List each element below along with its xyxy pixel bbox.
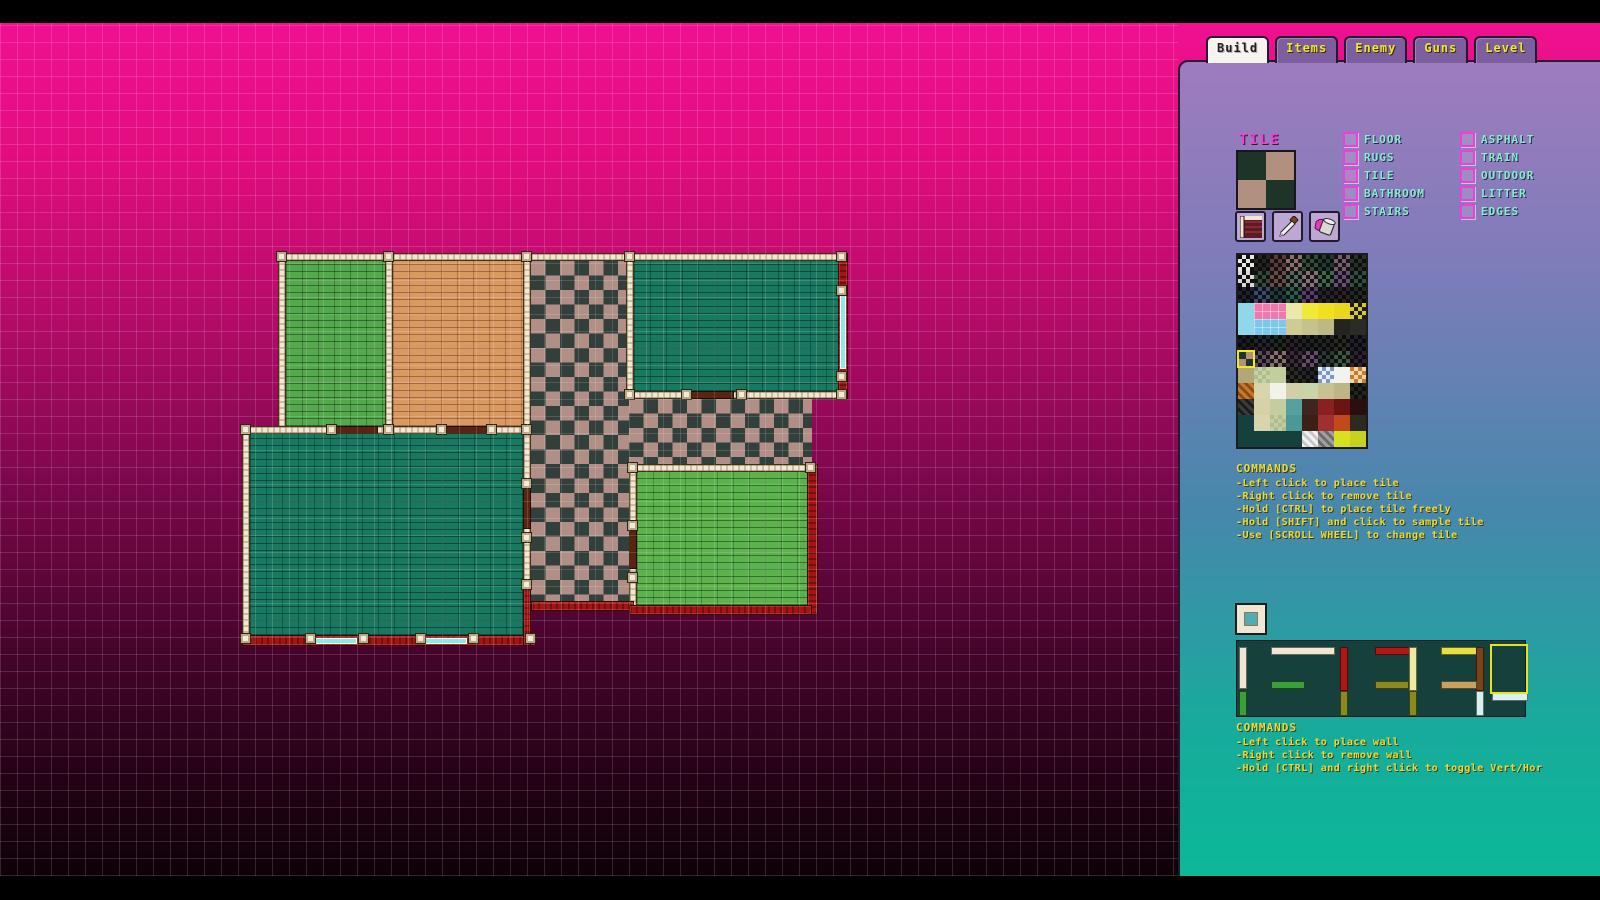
- command-line: -Left click to place wall: [1236, 736, 1542, 749]
- palette-tile[interactable]: [1350, 303, 1366, 319]
- window[interactable]: [840, 291, 846, 369]
- wall-palette-segment[interactable]: [1271, 681, 1305, 689]
- checkbox-stairs[interactable]: [1343, 204, 1358, 219]
- wall-post: [486, 424, 497, 435]
- category-train[interactable]: TRAIN: [1460, 151, 1534, 164]
- tile-categories-column-1: FLOORRUGS✕TILEBATHROOMSTAIRS: [1343, 133, 1425, 218]
- paint-bucket-tool-button[interactable]: [1309, 211, 1340, 242]
- palette-tile[interactable]: [1350, 271, 1366, 287]
- command-line: -Left click to place tile: [1236, 477, 1484, 490]
- palette-tile[interactable]: [1334, 255, 1350, 271]
- wall-palette-segment[interactable]: [1375, 681, 1409, 689]
- eyedropper-tool-button[interactable]: [1272, 211, 1303, 242]
- editor-panel: BuildItemsEnemyGunsLevel TILE: [1178, 23, 1600, 876]
- wall-post: [624, 251, 635, 262]
- palette-tile[interactable]: [1350, 287, 1366, 303]
- checkbox-edges[interactable]: [1460, 204, 1475, 219]
- room-floor-greenBrick2[interactable]: [637, 472, 807, 605]
- door[interactable]: [629, 525, 637, 569]
- checkbox-label: EDGES: [1481, 205, 1519, 218]
- tile-section-title: TILE: [1239, 132, 1281, 148]
- palette-tile[interactable]: [1318, 351, 1334, 367]
- wall-white[interactable]: [385, 253, 393, 434]
- palette-tile[interactable]: [1334, 415, 1350, 431]
- palette-tile[interactable]: [1286, 335, 1302, 351]
- window[interactable]: [422, 638, 467, 644]
- wall-white[interactable]: [523, 253, 531, 434]
- checkbox-label: FLOOR: [1364, 133, 1402, 146]
- room-floor-tealBrick[interactable]: [250, 434, 523, 635]
- wall-commands-title: COMMANDS: [1236, 721, 1542, 734]
- checkbox-label: RUGS: [1364, 151, 1395, 164]
- category-bathroom[interactable]: BATHROOM: [1343, 187, 1425, 200]
- palette-tile[interactable]: [1318, 431, 1334, 447]
- checkbox-tile[interactable]: ✕: [1343, 168, 1358, 183]
- checkbox-outdoor[interactable]: [1460, 168, 1475, 183]
- palette-tile[interactable]: [1238, 399, 1254, 415]
- window[interactable]: [312, 638, 357, 644]
- wall-palette-segment[interactable]: [1340, 647, 1348, 691]
- letterbox-bottom: [0, 876, 1600, 900]
- palette-tile[interactable]: [1334, 367, 1350, 383]
- room-floor-checker[interactable]: [629, 399, 812, 464]
- wall-palette-segment[interactable]: [1239, 691, 1247, 716]
- wall-palette-segment[interactable]: [1441, 681, 1477, 689]
- palette-tile[interactable]: [1302, 351, 1318, 367]
- wall-post: [468, 633, 479, 644]
- command-line: -Use [SCROLL WHEEL] to change tile: [1236, 529, 1484, 542]
- tab-guns[interactable]: Guns: [1413, 36, 1468, 63]
- checkbox-label: BATHROOM: [1364, 187, 1425, 200]
- wall-post: [627, 572, 638, 583]
- checkbox-label: TILE: [1364, 169, 1395, 182]
- wall-post: [836, 285, 847, 296]
- palette-tile[interactable]: [1254, 287, 1270, 303]
- checkbox-label: STAIRS: [1364, 205, 1410, 218]
- checkbox-floor[interactable]: [1343, 132, 1358, 147]
- palette-tile[interactable]: [1254, 255, 1270, 271]
- wall-post: [240, 633, 251, 644]
- tile-commands: COMMANDS -Left click to place tile-Right…: [1236, 462, 1484, 542]
- wall-palette-segment[interactable]: [1476, 691, 1484, 716]
- palette-tile[interactable]: [1270, 303, 1286, 319]
- palette-tile[interactable]: [1302, 367, 1318, 383]
- wall-post: [305, 633, 316, 644]
- palette-tile[interactable]: [1350, 383, 1366, 399]
- category-stairs[interactable]: STAIRS: [1343, 205, 1425, 218]
- palette-tile[interactable]: [1238, 303, 1254, 319]
- palette-tile[interactable]: [1254, 399, 1270, 415]
- palette-tile[interactable]: [1286, 287, 1302, 303]
- category-litter[interactable]: LITTER: [1460, 187, 1534, 200]
- wall-white[interactable]: [626, 253, 634, 399]
- command-line: -Hold [SHIFT] and click to sample tile: [1236, 516, 1484, 529]
- wall-post: [326, 424, 337, 435]
- wall-pattern-icon: [1240, 216, 1262, 238]
- wall-post: [358, 633, 369, 644]
- checkbox-label: TRAIN: [1481, 151, 1519, 164]
- wall-palette-segment[interactable]: [1476, 647, 1484, 691]
- palette-tile[interactable]: [1238, 255, 1254, 271]
- wall-commands: COMMANDS -Left click to place wall-Right…: [1236, 721, 1542, 775]
- palette-tile[interactable]: [1302, 319, 1318, 335]
- palette-tile[interactable]: [1286, 415, 1302, 431]
- palette-tile[interactable]: [1350, 415, 1366, 431]
- letterbox-top: [0, 0, 1600, 23]
- wall-post: [436, 424, 447, 435]
- command-line: -Right click to remove tile: [1236, 490, 1484, 503]
- wall-post: [525, 633, 536, 644]
- palette-tile[interactable]: [1302, 335, 1318, 351]
- checkbox-litter[interactable]: [1460, 186, 1475, 201]
- wall-post: [805, 462, 816, 473]
- palette-tile[interactable]: [1254, 367, 1270, 383]
- palette-tile[interactable]: [1318, 383, 1334, 399]
- door[interactable]: [688, 391, 734, 399]
- palette-tile[interactable]: [1350, 255, 1366, 271]
- checkbox-label: LITTER: [1481, 187, 1527, 200]
- category-tile[interactable]: ✕TILE: [1343, 169, 1425, 182]
- palette-tile[interactable]: [1238, 287, 1254, 303]
- selected-tile-preview: [1236, 150, 1296, 210]
- wall-palette-segment[interactable]: [1409, 647, 1417, 691]
- wall-palette-segment[interactable]: [1409, 691, 1417, 716]
- palette-tile[interactable]: [1302, 287, 1318, 303]
- palette-tile[interactable]: [1302, 399, 1318, 415]
- palette-tile[interactable]: [1238, 335, 1254, 351]
- category-rugs[interactable]: RUGS: [1343, 151, 1425, 164]
- wall-post: [836, 251, 847, 262]
- checkbox-label: OUTDOOR: [1481, 169, 1534, 182]
- command-line: -Hold [CTRL] to place tile freely: [1236, 503, 1484, 516]
- tab-enemy[interactable]: Enemy: [1344, 36, 1407, 63]
- checkbox-rugs[interactable]: [1343, 150, 1358, 165]
- wall-palette-segment[interactable]: [1239, 647, 1247, 689]
- door[interactable]: [523, 483, 531, 529]
- palette-tile[interactable]: [1286, 319, 1302, 335]
- wall-white[interactable]: [242, 426, 250, 646]
- wall-post: [624, 389, 635, 400]
- wall-post: [383, 424, 394, 435]
- wall-palette[interactable]: [1236, 640, 1526, 717]
- palette-tile[interactable]: [1334, 319, 1350, 335]
- palette-tile[interactable]: [1302, 383, 1318, 399]
- palette-tile[interactable]: [1318, 255, 1334, 271]
- palette-tile[interactable]: [1350, 431, 1366, 447]
- wall-post: [627, 462, 638, 473]
- tab-bar: BuildItemsEnemyGunsLevel: [1206, 36, 1537, 62]
- palette-tile[interactable]: [1302, 415, 1318, 431]
- palette-tile[interactable]: [1270, 431, 1286, 447]
- palette-tile[interactable]: [1238, 319, 1254, 335]
- palette-tile[interactable]: [1238, 415, 1254, 431]
- wall-post: [240, 424, 251, 435]
- palette-tile[interactable]: [1254, 383, 1270, 399]
- room-floor-greenBrick[interactable]: [286, 261, 385, 426]
- tile-commands-title: COMMANDS: [1236, 462, 1484, 475]
- wall-post: [736, 389, 747, 400]
- wall-post: [276, 251, 287, 262]
- palette-tile[interactable]: [1238, 431, 1254, 447]
- palette-tile[interactable]: [1318, 319, 1334, 335]
- panel-body: TILE: [1178, 60, 1600, 876]
- selected-wall-preview: [1237, 605, 1265, 633]
- room-floor-tealBrick[interactable]: [634, 261, 838, 391]
- palette-tile[interactable]: [1286, 367, 1302, 383]
- wall-post: [836, 389, 847, 400]
- palette-tile[interactable]: [1286, 303, 1302, 319]
- wall-white[interactable]: [629, 464, 812, 472]
- palette-tile[interactable]: [1302, 431, 1318, 447]
- eyedropper-icon: [1277, 216, 1299, 238]
- checkbox-label: ASPHALT: [1481, 133, 1534, 146]
- wall-palette-segment[interactable]: [1340, 691, 1348, 716]
- palette-tile[interactable]: [1350, 319, 1366, 335]
- palette-tile[interactable]: [1270, 319, 1286, 335]
- palette-tile[interactable]: [1302, 271, 1318, 287]
- palette-tile[interactable]: [1318, 335, 1334, 351]
- palette-tile-selected[interactable]: [1238, 351, 1254, 367]
- palette-tile[interactable]: [1318, 399, 1334, 415]
- tab-level[interactable]: Level: [1474, 36, 1537, 63]
- palette-tile[interactable]: [1270, 399, 1286, 415]
- wall-post: [836, 371, 847, 382]
- palette-tile[interactable]: [1254, 415, 1270, 431]
- palette-tile[interactable]: [1350, 367, 1366, 383]
- wall-palette-selected[interactable]: [1490, 644, 1528, 694]
- paint-bucket-icon: [1313, 216, 1337, 238]
- checkbox-asphalt[interactable]: [1460, 132, 1475, 147]
- command-line: -Right click to remove wall: [1236, 749, 1542, 762]
- palette-tile[interactable]: [1286, 399, 1302, 415]
- palette-tile[interactable]: [1254, 271, 1270, 287]
- palette-tile[interactable]: [1334, 303, 1350, 319]
- wall-red[interactable]: [629, 605, 812, 615]
- palette-tile[interactable]: [1286, 255, 1302, 271]
- wall-post: [681, 389, 692, 400]
- wall-post: [415, 633, 426, 644]
- tab-build[interactable]: Build: [1206, 36, 1269, 63]
- wall-post: [383, 251, 394, 262]
- palette-tile[interactable]: [1270, 255, 1286, 271]
- palette-tile[interactable]: [1334, 287, 1350, 303]
- palette-tile[interactable]: [1302, 303, 1318, 319]
- palette-tile[interactable]: [1270, 383, 1286, 399]
- tab-items[interactable]: Items: [1275, 36, 1338, 63]
- palette-tile[interactable]: [1254, 335, 1270, 351]
- wall-red[interactable]: [531, 601, 634, 611]
- palette-tile[interactable]: [1254, 303, 1270, 319]
- palette-tile[interactable]: [1302, 255, 1318, 271]
- command-line: -Hold [CTRL] and right click to toggle V…: [1236, 762, 1542, 775]
- palette-tile[interactable]: [1238, 383, 1254, 399]
- wall-post: [521, 478, 532, 489]
- wall-red[interactable]: [242, 635, 536, 646]
- wall-palette-segment[interactable]: [1492, 693, 1528, 701]
- wall-post: [627, 520, 638, 531]
- palette-tile[interactable]: [1238, 271, 1254, 287]
- palette-tile[interactable]: [1270, 367, 1286, 383]
- category-asphalt[interactable]: ASPHALT: [1460, 133, 1534, 146]
- palette-tile[interactable]: [1334, 335, 1350, 351]
- room-floor-checker[interactable]: [531, 261, 629, 603]
- palette-tile[interactable]: [1350, 351, 1366, 367]
- wall-palette-segment[interactable]: [1271, 647, 1335, 655]
- palette-tile[interactable]: [1254, 319, 1270, 335]
- room-floor-orangeBrick[interactable]: [393, 261, 523, 426]
- palette-tile[interactable]: [1318, 367, 1334, 383]
- palette-tile[interactable]: [1350, 335, 1366, 351]
- palette-tile[interactable]: [1270, 335, 1286, 351]
- level-editor-screen: BuildItemsEnemyGunsLevel TILE: [0, 0, 1600, 900]
- palette-tile[interactable]: [1318, 287, 1334, 303]
- palette-tile[interactable]: [1254, 351, 1270, 367]
- palette-tile[interactable]: [1318, 415, 1334, 431]
- wall-palette-segment[interactable]: [1375, 647, 1413, 655]
- palette-tile[interactable]: [1254, 431, 1270, 447]
- wall-pattern-tool-button[interactable]: [1235, 211, 1266, 242]
- tile-categories-column-2: ASPHALTTRAINOUTDOORLITTEREDGES: [1460, 133, 1534, 218]
- palette-tile[interactable]: [1286, 351, 1302, 367]
- palette-tile[interactable]: [1270, 351, 1286, 367]
- tile-palette[interactable]: [1236, 253, 1368, 449]
- palette-tile[interactable]: [1350, 399, 1366, 415]
- wall-white[interactable]: [278, 253, 286, 434]
- palette-tile[interactable]: [1334, 431, 1350, 447]
- wall-post: [521, 532, 532, 543]
- wall-post: [521, 251, 532, 262]
- palette-tile[interactable]: [1334, 271, 1350, 287]
- palette-tile[interactable]: [1270, 415, 1286, 431]
- palette-tile[interactable]: [1286, 271, 1302, 287]
- checkbox-bathroom[interactable]: [1343, 186, 1358, 201]
- palette-tile[interactable]: [1318, 271, 1334, 287]
- palette-tile[interactable]: [1334, 383, 1350, 399]
- wall-post: [521, 424, 532, 435]
- palette-tile[interactable]: [1334, 351, 1350, 367]
- category-outdoor[interactable]: OUTDOOR: [1460, 169, 1534, 182]
- category-edges[interactable]: EDGES: [1460, 205, 1534, 218]
- palette-tile[interactable]: [1286, 383, 1302, 399]
- wall-red[interactable]: [807, 464, 818, 615]
- palette-tile[interactable]: [1334, 399, 1350, 415]
- palette-tile[interactable]: [1270, 271, 1286, 287]
- palette-tile[interactable]: [1238, 367, 1254, 383]
- wall-post: [521, 579, 532, 590]
- category-floor[interactable]: FLOOR: [1343, 133, 1425, 146]
- wall-palette-segment[interactable]: [1441, 647, 1481, 655]
- tool-row: [1235, 211, 1340, 242]
- wall-white[interactable]: [278, 253, 848, 261]
- palette-tile[interactable]: [1318, 303, 1334, 319]
- palette-tile[interactable]: [1286, 431, 1302, 447]
- palette-tile[interactable]: [1270, 287, 1286, 303]
- level-canvas[interactable]: [0, 23, 1178, 876]
- checkbox-train[interactable]: [1460, 150, 1475, 165]
